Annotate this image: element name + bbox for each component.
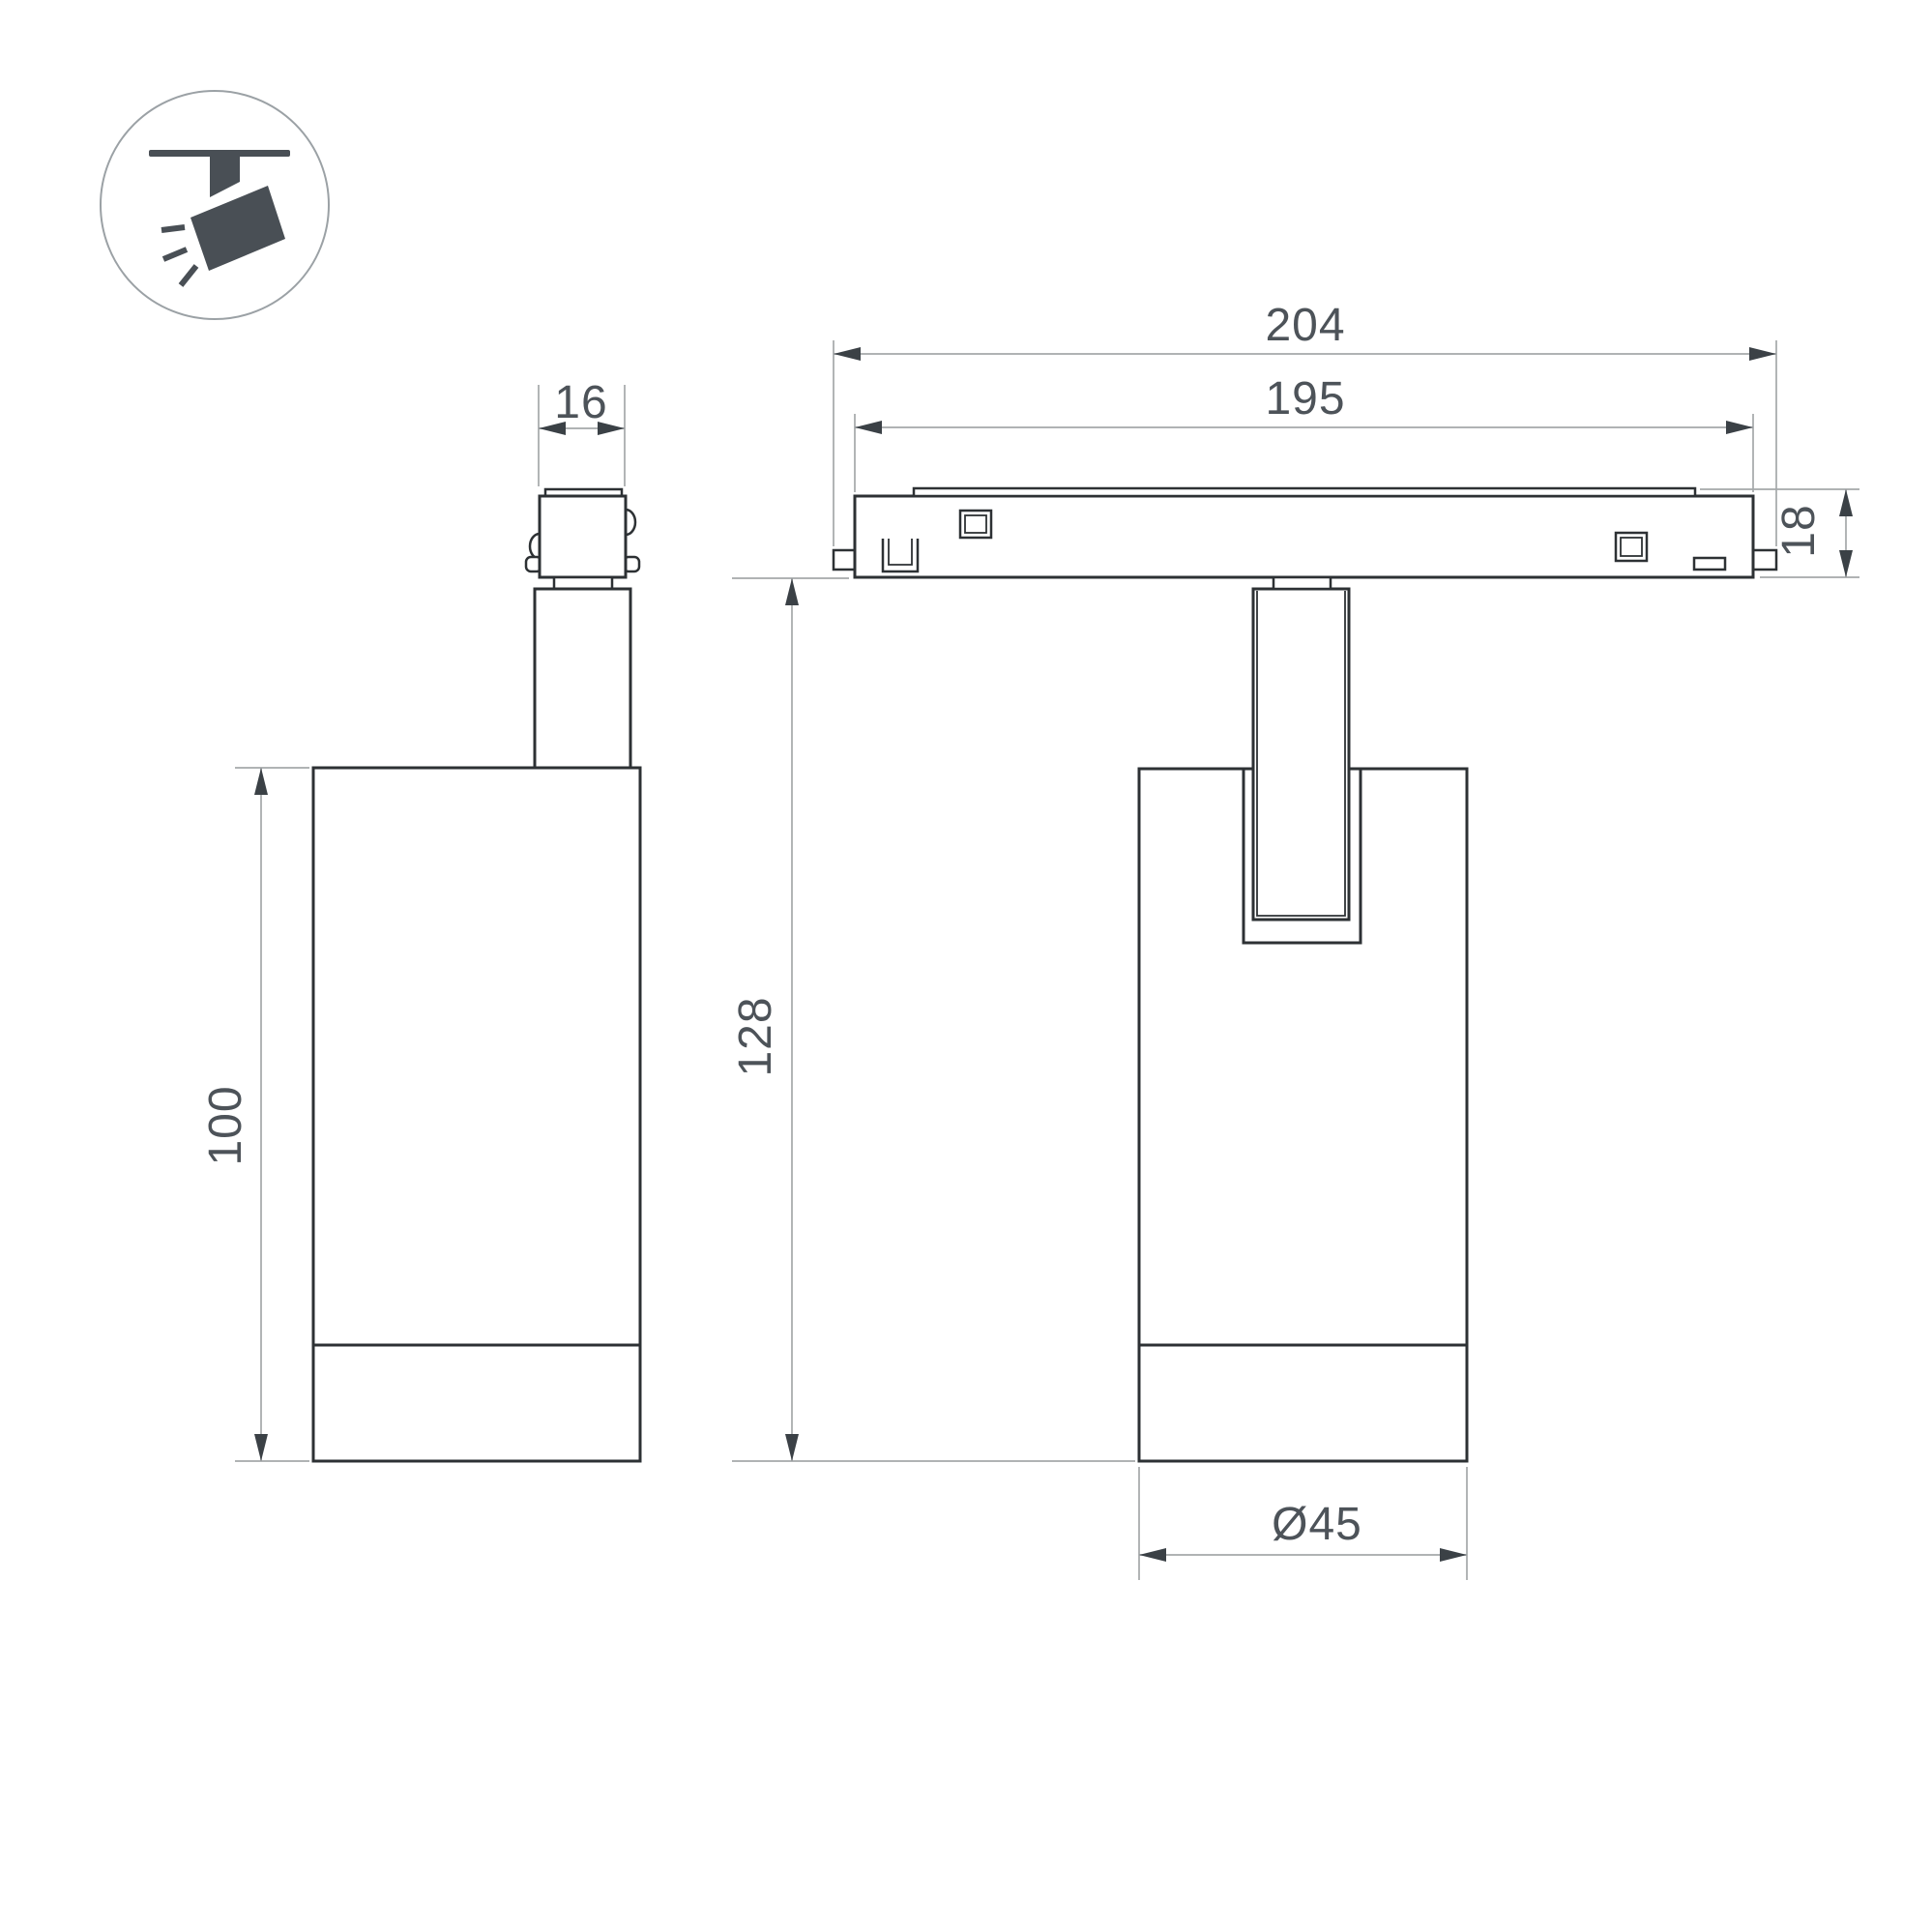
icon-circle [101, 91, 329, 319]
track-rail [834, 488, 1776, 577]
dimension-label-body-diameter: Ø45 [1272, 1499, 1362, 1550]
side-view-adapter [526, 489, 639, 589]
dimension-label-track-outer: 204 [1265, 300, 1345, 351]
side-view: 16 100 [200, 377, 640, 1461]
icon-ceiling-bar [149, 150, 290, 157]
icon-lamp-body [190, 186, 285, 271]
rail-top-strip [914, 488, 1695, 496]
icon-light-ray [163, 249, 187, 259]
side-view-stem [535, 589, 630, 768]
dimension-body-diameter: Ø45 [1139, 1467, 1467, 1580]
dimension-label-overall-height: 128 [730, 996, 781, 1076]
dimension-label-track-height: 18 [1773, 504, 1825, 557]
dimension-label-track-inner: 195 [1265, 373, 1345, 424]
track-spotlight-icon [101, 91, 329, 319]
rail-end-tab-left [834, 550, 855, 570]
icon-light-ray [161, 227, 185, 230]
dimension-label-body-height: 100 [200, 1085, 251, 1165]
dimension-track-inner: 195 [855, 373, 1753, 492]
front-view: 204 195 [730, 300, 1859, 1580]
dimension-body-height: 100 [200, 768, 309, 1461]
dimension-drawing: 16 100 [0, 0, 1932, 1932]
side-view-body [313, 768, 640, 1461]
adapter-block [540, 496, 626, 577]
adapter-neck [554, 577, 612, 589]
icon-mount-stem [210, 156, 240, 197]
dimension-stem-width: 16 [539, 377, 625, 486]
icon-light-ray [181, 266, 196, 285]
front-view-stem-collar [1273, 577, 1331, 589]
drawing-canvas: 16 100 [0, 0, 1932, 1932]
front-view-stem [1253, 589, 1349, 920]
dimension-label-stem-width: 16 [554, 377, 607, 428]
dimension-overall-height: 128 [730, 578, 1135, 1461]
